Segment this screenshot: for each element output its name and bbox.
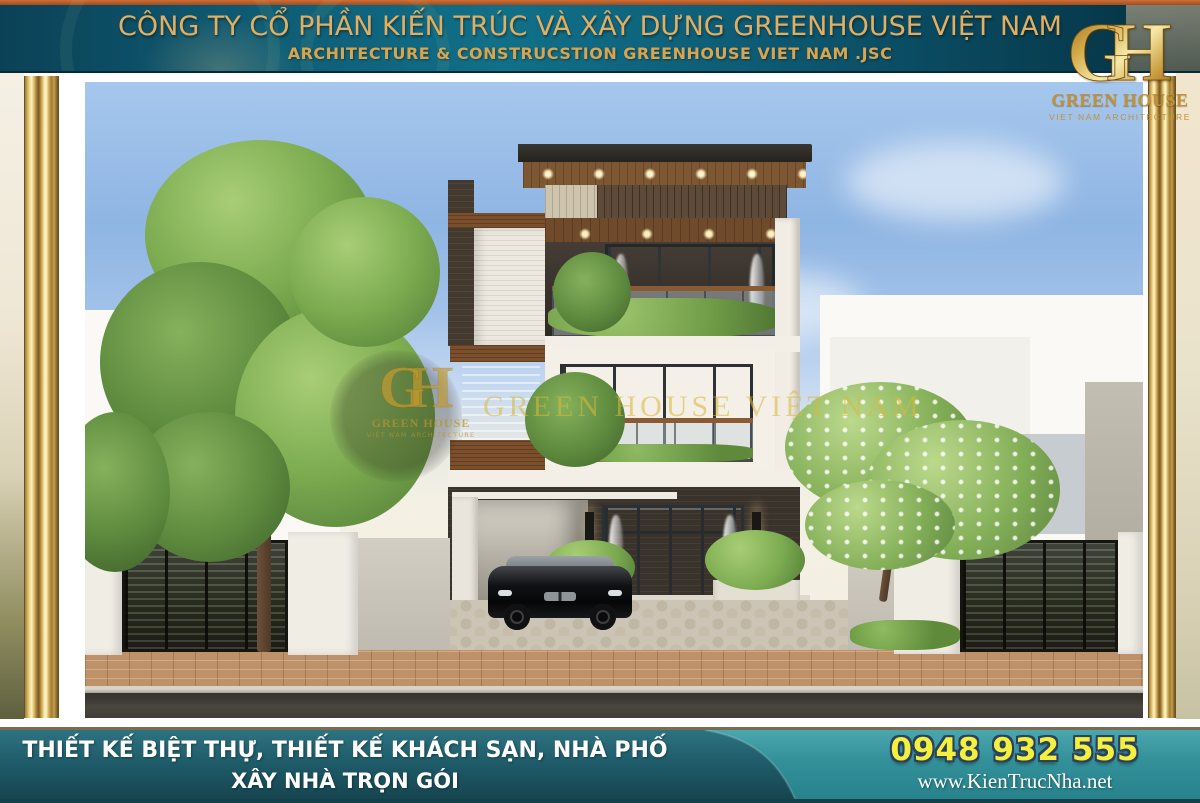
logo-monogram-icon: GH [1065,4,1175,96]
roof [518,144,812,162]
company-header: CÔNG TY CỔ PHẦN KIẾN TRÚC VÀ XÂY DỰNG GR… [25,11,1155,64]
watermark-text: GREEN HOUSE VIỆT NAM [483,390,923,424]
phone-number: 0948 932 555 [845,732,1185,768]
large-tree-canopy [290,197,440,347]
watermark-logo: GH GREEN HOUSE VIỆT NAM ARCHITECTURE [363,354,479,439]
floor-band [448,470,800,487]
car [488,552,632,630]
brick-pier-left [448,180,474,346]
car-headlight [498,590,512,596]
gold-frame-right [1148,76,1176,718]
hedge [850,620,960,650]
gold-frame-left [24,76,59,718]
balcony-downlights [555,228,775,240]
shrub [705,530,805,590]
watermark-logo-tagline: VIỆT NAM ARCHITECTURE [363,431,479,439]
watermark-logo-name: GREEN HOUSE [363,416,479,431]
facade-slats-light [545,185,597,220]
louver-volume [474,228,545,346]
services-text: THIẾT KẾ BIỆT THỰ, THIẾT KẾ KHÁCH SẠN, N… [20,736,670,796]
banner-bottom-line [0,71,1200,73]
watermark-monogram: GH [379,354,453,420]
left-margin-art [0,73,24,719]
brick-sidewalk [85,650,1143,688]
boundary-wall-left [358,538,450,650]
company-name-vietnamese: CÔNG TY CỔ PHẦN KIẾN TRÚC VÀ XÂY DỰNG GR… [25,11,1155,43]
carport-lintel [452,492,677,499]
entry-transom [605,531,741,534]
services-line2: XÂY NHÀ TRỌN GÓI [20,766,670,796]
facade-slats-dark [597,185,787,220]
contact-block: 0948 932 555 www.KienTrucNha.net [845,732,1185,794]
footer-banner: THIẾT KẾ BIỆT THỰ, THIẾT KẾ KHÁCH SẠN, N… [0,727,1200,803]
fence-pillar [288,532,358,655]
watermark-monogram-icon: GH [373,354,469,420]
logo-tagline: VIET NAM ARCHITECTURE [1040,112,1200,122]
services-line1: THIẾT KẾ BIỆT THỰ, THIẾT KẾ KHÁCH SẠN, N… [20,736,670,766]
architectural-render: GH GREEN HOUSE VIỆT NAM ARCHITECTURE GRE… [85,82,1143,718]
company-name-english: ARCHITECTURE & CONSTRUCSTION GREENHOUSE … [25,43,1155,64]
poster-canvas: CÔNG TY CỔ PHẦN KIẾN TRÚC VÀ XÂY DỰNG GR… [0,0,1200,803]
header-banner: CÔNG TY CỔ PHẦN KIẾN TRÚC VÀ XÂY DỰNG GR… [0,0,1200,73]
company-logo: GH GREEN HOUSE VIET NAM ARCHITECTURE [1040,4,1200,156]
right-margin-art [1176,73,1200,719]
car-grille [544,592,576,601]
car-headlight [608,590,622,596]
balcony-tree [553,252,631,332]
fence-pillar [1118,532,1143,654]
car-wheel [590,604,616,630]
car-wheel [504,604,530,630]
wood-slat-panel [450,440,545,470]
flowering-tree-canopy [805,480,955,570]
logo-monogram: GH [1067,6,1170,96]
wood-band-top [448,213,545,228]
cloud [845,142,1065,222]
asphalt-road [85,693,1143,718]
website-url: www.KienTrucNha.net [845,769,1185,794]
roof-downlights [523,166,806,182]
